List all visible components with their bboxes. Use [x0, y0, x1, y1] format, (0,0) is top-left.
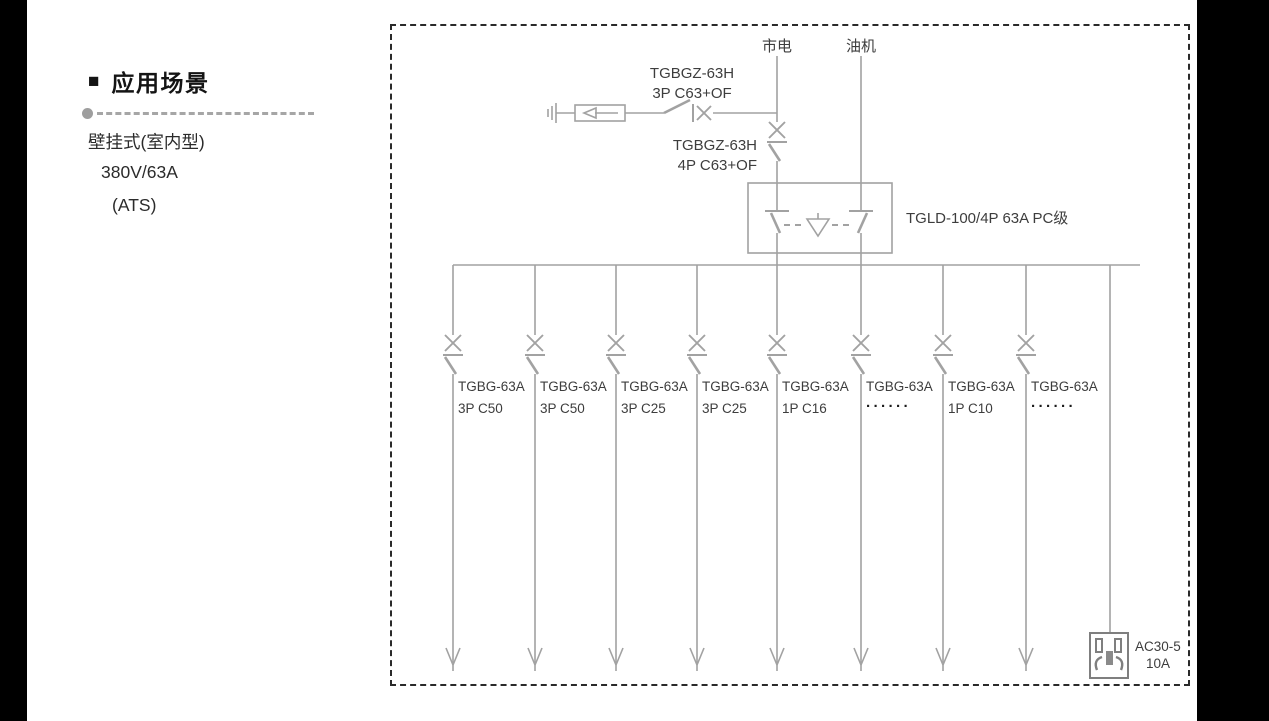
ats-right-blade-icon [858, 213, 867, 233]
branch-circuit-1: TGBG-63A 3P C50 [443, 265, 525, 671]
branch-spec-label: 3P C50 [540, 401, 585, 416]
branch-circuit-2: TGBG-63A 3P C50 [525, 265, 607, 671]
spd-arrow-icon [584, 108, 618, 118]
branch-model-label: TGBG-63A [948, 379, 1015, 394]
mains-breaker-icon [767, 122, 787, 161]
branch-circuit-5: TGBG-63A 1P C16 [767, 265, 849, 671]
branch-breaker-icon [933, 335, 953, 374]
branch-spec-label: ······ [866, 398, 911, 415]
branch-circuit-4: TGBG-63A 3P C25 [687, 265, 769, 671]
branch-breaker-icon [1016, 335, 1036, 374]
socket-icon [1090, 633, 1128, 678]
branch-model-label: TGBG-63A [458, 379, 525, 394]
branch-circuit-6: TGBG-63A ······ [851, 265, 933, 671]
branch-model-label: TGBG-63A [782, 379, 849, 394]
branch-model-label: TGBG-63A [866, 379, 933, 394]
branch-spec-label: 3P C25 [702, 401, 747, 416]
branch-spec-label: ······ [1031, 398, 1076, 415]
ats-triangle-icon [807, 213, 829, 236]
main-breaker-model: TGBGZ-63H [673, 137, 757, 154]
breaker-x-icon [697, 106, 711, 120]
surge-breaker-model: TGBGZ-63H [650, 65, 734, 82]
surge-breaker-spec: 3P C63+OF [652, 85, 731, 102]
ground-icon [548, 103, 556, 123]
branch-circuit-7: TGBG-63A 1P C10 [933, 265, 1015, 671]
branch-breaker-icon [851, 335, 871, 374]
branch-model-label: TGBG-63A [540, 379, 607, 394]
generator-source-label: 油机 [846, 38, 876, 55]
branch-breaker-icon [606, 335, 626, 374]
socket-model-label: AC30-5 [1135, 639, 1181, 654]
socket-branch: AC30-5 10A [1090, 265, 1181, 678]
ats-model-label: TGLD-100/4P 63A PC级 [906, 210, 1068, 227]
branch-spec-label: 1P C10 [948, 401, 993, 416]
branch-breaker-icon [687, 335, 707, 374]
branch-spec-label: 1P C16 [782, 401, 827, 416]
branch-breaker-icon [767, 335, 787, 374]
ats-box [748, 183, 892, 253]
surge-protection-branch [548, 100, 777, 123]
mains-feed [767, 56, 787, 183]
socket-rating-label: 10A [1146, 656, 1170, 671]
branch-model-label: TGBG-63A [702, 379, 769, 394]
branch-spec-label: 3P C50 [458, 401, 503, 416]
ats-left-blade-icon [771, 213, 780, 233]
mains-source-label: 市电 [762, 38, 792, 55]
branch-spec-label: 3P C25 [621, 401, 666, 416]
single-line-diagram: 市电 油机 TGBGZ-63H 3P C63+OF TGBGZ-63H 4P C… [0, 0, 1269, 721]
branch-model-label: TGBG-63A [1031, 379, 1098, 394]
branch-circuit-8: TGBG-63A ······ [1016, 265, 1098, 671]
branch-breaker-icon [525, 335, 545, 374]
main-breaker-spec: 4P C63+OF [678, 157, 757, 174]
ats-switch [748, 183, 892, 265]
branch-breaker-icon [443, 335, 463, 374]
branch-model-label: TGBG-63A [621, 379, 688, 394]
branch-circuit-3: TGBG-63A 3P C25 [606, 265, 688, 671]
